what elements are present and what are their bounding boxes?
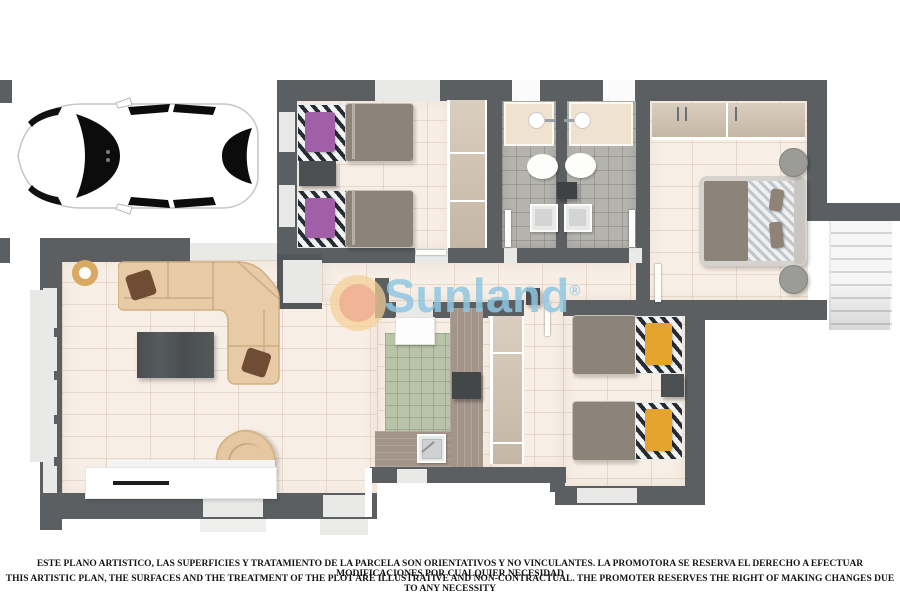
window-tick-1 (54, 328, 61, 337)
corridor-bottom-jog (550, 467, 565, 492)
bathroom1-shower-head (528, 112, 545, 129)
kitchen-bottom-door-gap (397, 469, 427, 483)
watermark-sun-inner (339, 284, 377, 322)
master-nightstand-top (779, 148, 808, 177)
master-door-leaf (655, 264, 661, 302)
bedroom1-door-leaf (416, 250, 446, 255)
bedroom1-left-wall (277, 80, 297, 262)
coffee-table (137, 332, 214, 378)
watermark-logo: Sunland® (384, 272, 580, 319)
tv-screen (113, 481, 169, 485)
master-wardrobe-rail-1 (677, 107, 679, 121)
porch-apron-b (320, 519, 368, 535)
bedroom2-bedB-pillow (645, 409, 672, 451)
master-wardrobe-divider (726, 103, 728, 137)
master-wardrobe-rail-3 (735, 107, 737, 121)
entrance-vestibule (277, 254, 322, 309)
bathroom1-door-gap (504, 248, 517, 263)
kitchen-bottom-wall (370, 467, 490, 483)
corridor-closet-shelf2 (492, 442, 522, 444)
window-tick-3 (54, 415, 61, 424)
corridor-closet-shelf1 (492, 352, 522, 354)
bedroom2-right-wall (685, 300, 705, 505)
bathroom1-toilet (527, 154, 558, 179)
bedroom1-bedB-fold (352, 191, 355, 245)
kitchen-floor-green (385, 333, 450, 433)
closet1-bath1-wall (487, 80, 502, 250)
bathroom2-sink-basin (569, 209, 586, 226)
car-top-view (12, 96, 267, 218)
bathroom1-door-leaf (505, 210, 511, 247)
window-outer-apron (30, 290, 43, 462)
bath2-master-wall (636, 80, 650, 302)
master-nightstand-bottom (779, 265, 808, 294)
living-bottom-window-b (323, 495, 365, 517)
window-tick-4 (54, 457, 61, 466)
bedroom1-left-window-b (279, 185, 295, 227)
decor-ring (72, 260, 98, 286)
bedroom1-wardrobe (447, 100, 487, 248)
bedroom1-bedA-fold (352, 104, 355, 159)
left-wall-stub-top (0, 80, 12, 103)
bathroom2-door-gap (629, 248, 642, 263)
floorplan-canvas: Sunland® ESTE PLANO ARTISTICO, LAS SUPER… (0, 0, 900, 600)
bedroom2-bottom-window (577, 488, 637, 503)
bedroom2-nightstand (661, 374, 684, 397)
bedroom1-bedA-pillow (305, 112, 335, 152)
bedroom1-bedB-body (345, 190, 414, 248)
master-bed-headboard (794, 178, 805, 264)
below-master-wall (703, 300, 827, 320)
porch-apron-a (200, 519, 266, 532)
kitchen-oven (452, 372, 481, 399)
bathroom2-door-leaf (629, 210, 635, 247)
bathroom1-sink-basin (535, 209, 552, 226)
top-wall (277, 80, 827, 101)
window-tick-2 (54, 371, 61, 380)
stairs-shading (829, 221, 890, 330)
master-wardrobe (652, 103, 805, 140)
master-pillow-2 (769, 221, 784, 248)
bedroom1-wardrobe-shelf2 (449, 200, 485, 202)
bathroom2-top-window (603, 80, 635, 101)
master-wardrobe-rail-2 (685, 107, 687, 121)
bathrooms-bottom-wall (502, 248, 650, 263)
bedroom1-wardrobe-shelf1 (449, 152, 485, 154)
disclaimer-line-english: THIS ARTISTIC PLAN, THE SURFACES AND THE… (0, 574, 900, 594)
bathroom2-toilet (565, 153, 596, 178)
bathroom1-top-window (512, 80, 540, 101)
registered-mark: ® (569, 282, 580, 299)
bedroom1-bedA-body (345, 103, 414, 162)
watermark-logo-text: Sunland (384, 269, 569, 322)
bedroom1-top-window (375, 80, 440, 101)
bedroom2-bedA-pillow (645, 323, 672, 365)
bathroom2-shower-head (574, 112, 591, 129)
right-wall (807, 80, 827, 221)
bedroom1-nightstand (299, 161, 336, 186)
master-bed-blanket (704, 181, 748, 261)
living-left-window (43, 288, 57, 506)
left-wall-stub-bottom (0, 238, 10, 263)
bedroom2-bedA-body (572, 315, 637, 375)
bathroom-shaft-box (557, 182, 577, 199)
right-extension-wall (807, 203, 900, 221)
bedroom1-bedB-pillow (305, 198, 335, 238)
white-edge-strip (365, 468, 372, 517)
bedroom2-top-wall (563, 300, 703, 316)
bedroom2-bedB-body (572, 401, 637, 461)
bedroom1-left-window-a (279, 112, 295, 152)
